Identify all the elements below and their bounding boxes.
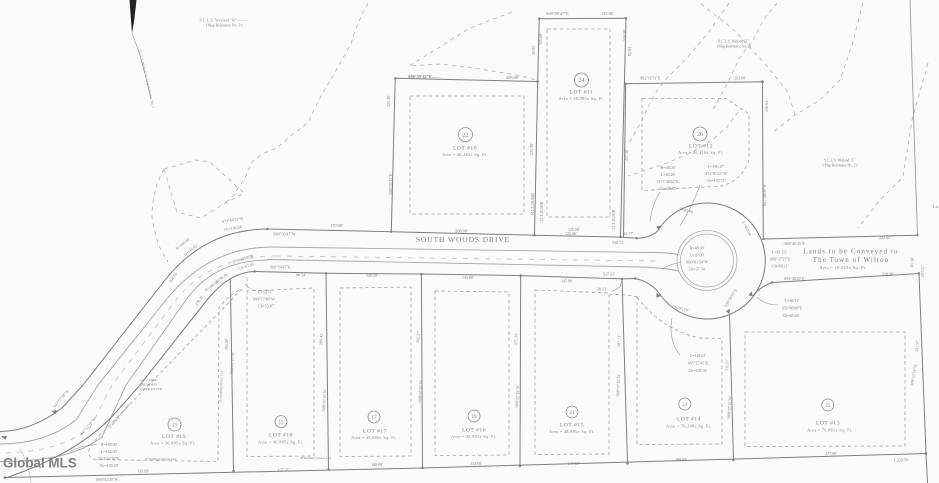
- svg-text:S82°11'51"E: S82°11'51"E: [640, 76, 661, 81]
- svg-text:LOT #15: LOT #15: [560, 423, 584, 429]
- svg-text:230.84': 230.84': [764, 100, 769, 112]
- svg-text:S.C.L.S. Wetland "B"———: S.C.L.S. Wetland "B"———: [200, 19, 249, 23]
- svg-text:13: 13: [172, 424, 178, 429]
- svg-text:137.37': 137.37': [278, 468, 290, 473]
- svg-text:222.62': 222.62': [879, 235, 891, 240]
- svg-text:L=53.71': L=53.71': [258, 290, 273, 295]
- svg-text:108.85': 108.85': [675, 457, 687, 462]
- svg-text:333.69': 333.69': [137, 469, 149, 474]
- svg-text:LOT #10: LOT #10: [453, 146, 477, 152]
- svg-text:SOUTH WOODS DRIVE: SOUTH WOODS DRIVE: [416, 235, 510, 244]
- svg-text:24: 24: [579, 78, 585, 84]
- svg-text:S07°48'09"W: S07°48'09"W: [762, 184, 767, 206]
- svg-text:L=180.27': L=180.27': [708, 164, 725, 169]
- svg-text:20' Building Setback Line: 20' Building Setback Line: [145, 457, 177, 461]
- svg-text:R=48.00': R=48.00': [690, 246, 705, 251]
- svg-text:80.54': 80.54': [296, 273, 306, 278]
- svg-text:S00°09'47"E: S00°09'47"E: [546, 11, 569, 16]
- svg-text:LOT #11: LOT #11: [570, 90, 594, 96]
- svg-text:(Map Reference No. 2): (Map Reference No. 2): [823, 164, 857, 168]
- svg-text:22: 22: [462, 133, 468, 139]
- svg-text:282.80': 282.80': [224, 338, 230, 350]
- svg-text:La: La: [933, 204, 938, 209]
- svg-text:320.00': 320.00': [622, 29, 627, 41]
- svg-text:FND HORIZ: FND HORIZ: [140, 383, 157, 387]
- svg-text:22.77': 22.77': [624, 231, 634, 236]
- svg-text:143.50': 143.50': [470, 461, 482, 466]
- svg-text:L=118.61': L=118.61': [690, 353, 707, 358]
- svg-text:3.LT 20.90B: 3.LT 20.90B: [611, 210, 616, 230]
- svg-text:147.00': 147.00': [568, 461, 580, 466]
- svg-text:281.57': 281.57': [914, 340, 920, 352]
- svg-text:179.98': 179.98': [330, 223, 343, 228]
- svg-text:(Map Reference No. 2): (Map Reference No. 2): [717, 45, 751, 49]
- svg-text:537.23': 537.23': [603, 272, 615, 277]
- svg-text:25: 25: [825, 404, 831, 409]
- svg-text:287.73': 287.73': [616, 335, 622, 347]
- svg-text:26: 26: [697, 132, 703, 138]
- svg-text:LOT #14: LOT #14: [677, 417, 701, 423]
- svg-text:S.C.L.S. Wetland "C": S.C.L.S. Wetland "C": [824, 159, 856, 163]
- svg-text:LOT #16: LOT #16: [462, 428, 486, 434]
- svg-text:TAPER TO CTR: TAPER TO CTR: [140, 387, 163, 391]
- svg-text:143.88': 143.88': [462, 275, 474, 280]
- svg-text:Global MLS: Global MLS: [3, 456, 77, 471]
- svg-text:(Map Reference No. 2): (Map Reference No. 2): [206, 24, 242, 28]
- svg-text:R=40.00': R=40.00': [661, 165, 676, 170]
- svg-text:299.42': 299.42': [318, 333, 324, 345]
- svg-text:140.00': 140.00': [371, 462, 383, 467]
- svg-text:LOT #13: LOT #13: [816, 421, 840, 427]
- svg-text:281.57': 281.57': [920, 265, 926, 277]
- svg-text:21: 21: [570, 411, 576, 416]
- svg-text:L=61.53': L=61.53': [772, 250, 787, 255]
- svg-text:The Town of Wilton: The Town of Wilton: [813, 256, 890, 264]
- svg-text:N22°02'18"E: N22°02'18"E: [98, 456, 120, 461]
- svg-text:Ch=130.58': Ch=130.58': [100, 463, 119, 468]
- svg-text:L=39.00': L=39.00': [690, 253, 705, 258]
- svg-text:L=40.26': L=40.26': [661, 172, 676, 177]
- svg-text:82.84: 82.84: [627, 47, 632, 56]
- svg-text:- S84°46'45"E: - S84°46'45"E: [782, 241, 806, 246]
- svg-text:Ch=37.54': Ch=37.54': [689, 267, 706, 272]
- svg-text:N69°56'47"W: N69°56'47"W: [273, 232, 296, 237]
- svg-text:3.LT 20.90B: 3.LT 20.90B: [539, 202, 544, 222]
- svg-text:140.10': 140.10': [366, 273, 378, 278]
- svg-text:277.88': 277.88': [825, 451, 837, 456]
- svg-text:S86°27'27"E: S86°27'27"E: [770, 257, 791, 262]
- svg-text:L=68.72': L=68.72': [785, 298, 800, 303]
- svg-text:208.00': 208.00': [455, 228, 468, 233]
- svg-text:17: 17: [372, 416, 378, 421]
- svg-text:N.LT. 20.90B: N.LT. 20.90B: [530, 193, 535, 215]
- svg-text:LOT #12: LOT #12: [689, 144, 713, 150]
- svg-text:L=134.50': L=134.50': [101, 449, 118, 454]
- svg-text:147.89': 147.89': [561, 279, 573, 284]
- svg-text:S65°25'45"E: S65°25'45"E: [688, 361, 709, 366]
- svg-text:Ch=65.60': Ch=65.60': [783, 313, 800, 318]
- svg-text:N00°03'15"E: N00°03'15"E: [388, 173, 393, 195]
- svg-text:S88°59'43"E——: S88°59'43"E——: [408, 74, 441, 79]
- svg-text:530.74': 530.74': [612, 240, 624, 245]
- svg-text:Ch=38.55': Ch=38.55': [660, 186, 677, 191]
- svg-text:125.00': 125.00': [601, 11, 614, 16]
- svg-text:Ch=109.36': Ch=109.36': [689, 368, 708, 373]
- svg-text:275.15': 275.15': [513, 333, 519, 345]
- svg-text:Lands to be Conveyed to: Lands to be Conveyed to: [803, 248, 898, 256]
- svg-text:228.38': 228.38': [882, 272, 894, 277]
- svg-text:227.18': 227.18': [624, 149, 629, 161]
- svg-text:S69°56'47"E: S69°56'47"E: [270, 265, 291, 270]
- svg-text:208.00': 208.00': [506, 75, 519, 80]
- svg-text:R=188.00': R=188.00': [101, 442, 118, 447]
- svg-text:65.56': 65.56': [909, 257, 915, 267]
- svg-text:20' Building Setback Line: 20' Building Setback Line: [300, 456, 332, 460]
- svg-text:LOT #19: LOT #19: [162, 434, 186, 440]
- svg-text:282.37': 282.37': [415, 331, 421, 343]
- svg-text:19: 19: [472, 415, 478, 420]
- svg-text:15: 15: [279, 421, 285, 426]
- svg-text:202.00': 202.00': [734, 76, 746, 81]
- svg-text:320.00': 320.00': [538, 33, 543, 45]
- svg-text:Ch=60.11': Ch=60.11': [772, 264, 789, 269]
- svg-text:125.00': 125.00': [568, 227, 580, 232]
- svg-text:Ch=53.07': Ch=53.07': [258, 304, 275, 309]
- svg-text:311.57': 311.57': [724, 359, 730, 371]
- svg-text:S74°01'22"W: S74°01'22"W: [705, 171, 727, 176]
- svg-text:S51°40'08"E: S51°40'08"E: [782, 306, 803, 311]
- svg-text:S.C.L.S. Wetland "C": S.C.L.S. Wetland "C": [718, 40, 750, 44]
- svg-text:3/4" = 5/8 Pin: 3/4" = 5/8 Pin: [140, 378, 158, 382]
- svg-text:225.39': 225.39': [529, 143, 534, 155]
- svg-text:S84°46'45"E: S84°46'45"E: [784, 276, 805, 281]
- svg-text:90.81': 90.81': [531, 45, 536, 55]
- svg-text:20.13': 20.13': [597, 287, 607, 292]
- svg-text:23: 23: [682, 403, 688, 408]
- svg-text:225.39': 225.39': [386, 95, 391, 107]
- svg-text:N71°48'44"E: N71°48'44"E: [657, 179, 679, 184]
- svg-text:LOT #17: LOT #17: [363, 429, 387, 435]
- svg-text:Ch=150.71': Ch=150.71': [707, 178, 726, 183]
- svg-text:N03°01'54"W: N03°01'54"W: [686, 260, 709, 265]
- svg-text:LOT #18: LOT #18: [269, 433, 293, 439]
- svg-text:S84°17'48"W: S84°17'48"W: [253, 297, 275, 302]
- svg-text:N69°52'45"W: N69°52'45"W: [96, 477, 119, 482]
